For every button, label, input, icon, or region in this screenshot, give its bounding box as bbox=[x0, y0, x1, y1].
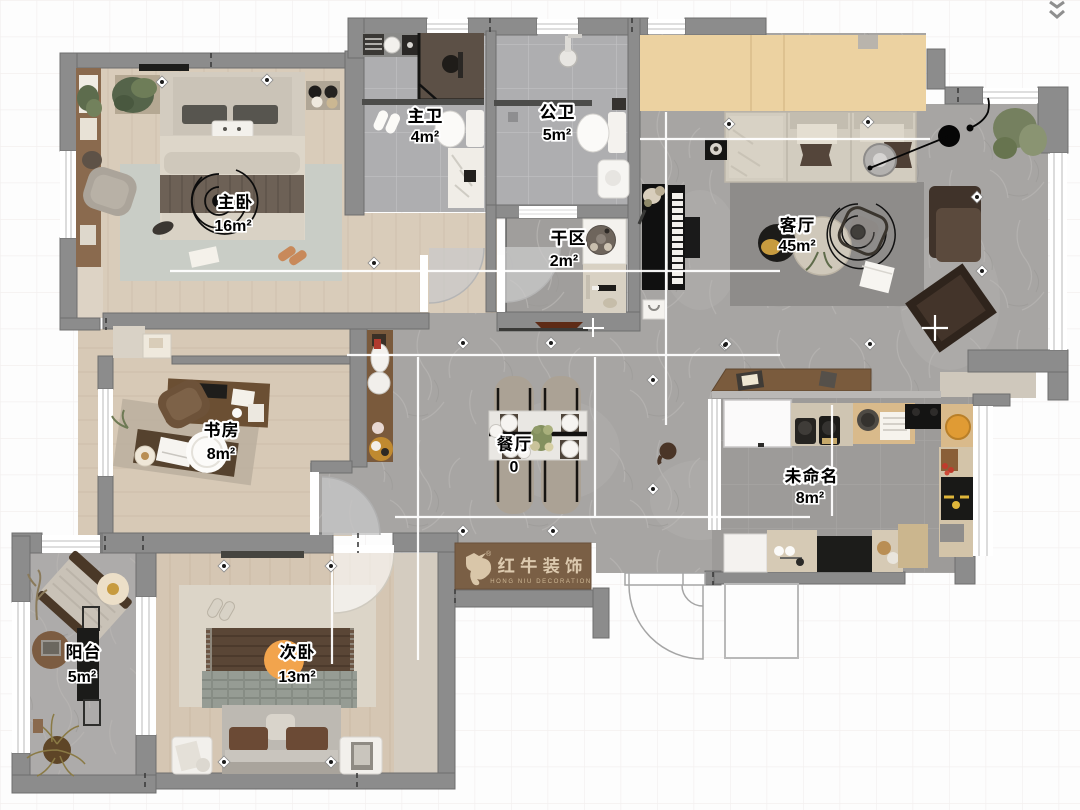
svg-text:®: ® bbox=[486, 550, 492, 558]
svg-text:HONG NIU DECORATION: HONG NIU DECORATION bbox=[490, 579, 592, 585]
svg-text:16m²: 16m² bbox=[214, 218, 251, 235]
svg-text:13m²: 13m² bbox=[278, 669, 315, 686]
svg-text:8m²: 8m² bbox=[796, 490, 824, 507]
svg-text:45m²: 45m² bbox=[778, 238, 815, 255]
svg-text:4m²: 4m² bbox=[411, 129, 439, 146]
svg-text:5m²: 5m² bbox=[68, 669, 96, 686]
svg-text:2m²: 2m² bbox=[550, 253, 578, 270]
svg-text:5m²: 5m² bbox=[543, 127, 571, 144]
svg-text:0: 0 bbox=[510, 459, 519, 476]
svg-text:8m²: 8m² bbox=[207, 446, 235, 463]
